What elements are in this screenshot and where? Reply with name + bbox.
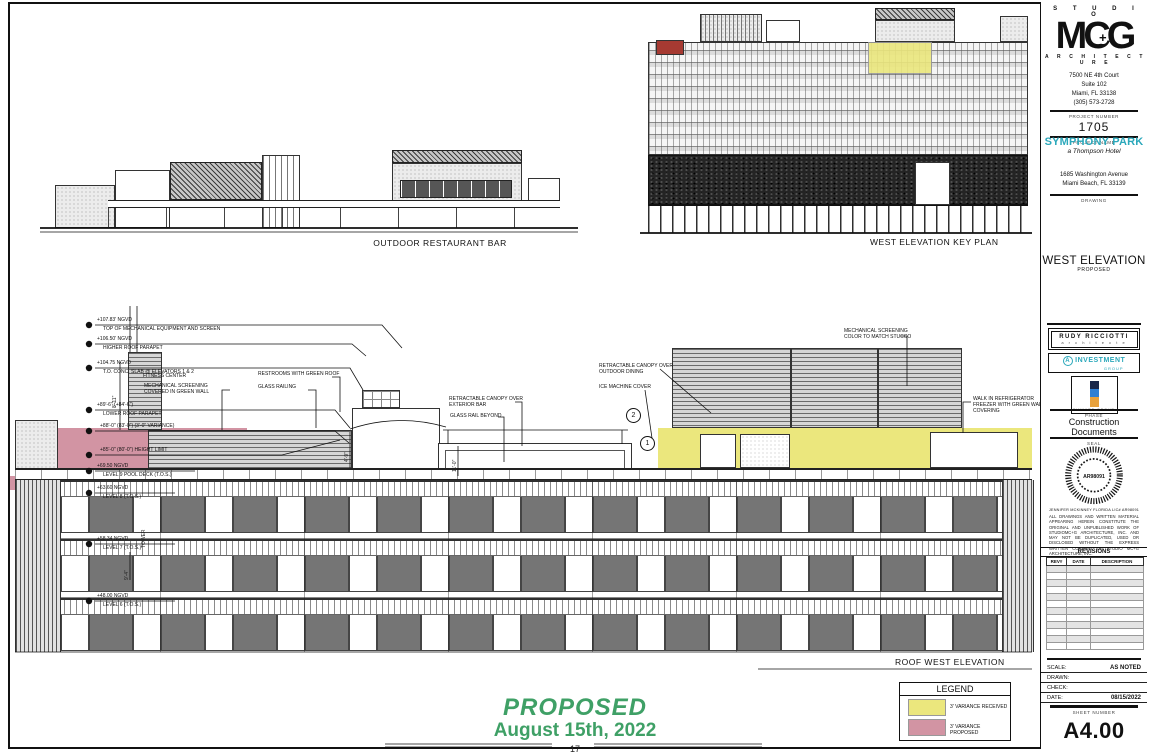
elevation-marker: +89'-6" (+84'-6")LOWER ROOF PARAPET (97, 402, 162, 417)
seal-zone: SEAL AR98091 JENNIFER MCKINNEY FLORIDA L… (1041, 437, 1147, 547)
callout-glass-rail-beyond: GLASS RAIL BEYOND (450, 413, 502, 419)
consultant-name: RUDY RICCIOTTI (1053, 334, 1136, 340)
keyplan-opening (915, 162, 950, 205)
date-label: DATE: (1047, 695, 1063, 701)
dimension-text: 4'-9" (344, 452, 350, 462)
revision-row (1047, 615, 1144, 622)
callout-ice-machine-cover: ICE MACHINE COVER (599, 384, 651, 390)
project-name: SYMPHONY PARK (1041, 136, 1147, 148)
tower-stair-core (16, 480, 61, 652)
revision-row (1047, 636, 1144, 643)
firm-identity: S T U D I O MCG+ A R C H I T E C T U R E… (1041, 2, 1147, 135)
consultant-rudy-ricciotti: RUDY RICCIOTTI a r c h i t e c t e (1048, 328, 1140, 350)
revisions-table: REV# DATE DESCRIPTION (1046, 557, 1144, 650)
dimension-text: 11'-0" (452, 460, 458, 472)
callout-walk-in-refrigerator: WALK IN REFRIGERATOR FREEZER WITH GREEN … (973, 396, 1045, 414)
elevation-marker: +69.50 NGVDLEVEL 9 POOL DECK (T.O.S.) (97, 463, 172, 478)
revisions-zone: REVISIONS REV# DATE DESCRIPTION (1041, 547, 1147, 657)
walk-in-refrigerator (930, 432, 1018, 468)
project-address: 1685 Washington Avenue Miami Beach, FL 3… (1041, 171, 1147, 189)
revisions-title: REVISIONS (1041, 547, 1147, 557)
consultant-role: GROUP (1051, 366, 1138, 371)
sheet-info-zone: SCALE:AS NOTED DRAWN: CHECK: DATE:08/15/… (1041, 657, 1147, 749)
keyplan-vegetation-band (648, 155, 1028, 205)
dimension-text: TOWER (141, 529, 147, 548)
elevation-marker: +63.60 NGVDLEVEL 8 (T.O.S.) (97, 485, 141, 500)
sheet-number: A4.00 (1041, 718, 1147, 744)
ice-machine-cover (740, 434, 790, 468)
scale-label: SCALE: (1047, 665, 1067, 671)
keyplan-roof-structure (1000, 16, 1028, 42)
keyplan-floors (648, 42, 1028, 155)
finvarb-logo-icon (1090, 381, 1099, 407)
revision-row (1047, 608, 1144, 615)
project-address-line: 1685 Washington Avenue (1041, 171, 1147, 180)
consultant-name: INVESTMENT (1075, 357, 1125, 364)
rev-col-date: DATE (1067, 558, 1091, 566)
divider (1050, 437, 1138, 439)
roof-parapet-wall (15, 420, 58, 470)
page-number: 17 (420, 744, 730, 754)
date-value: 08/15/2022 (1111, 695, 1141, 701)
drawing-sheet: OUTDOOR RESTAURANT BAR WEST ELEVATION KE… (0, 0, 1155, 755)
drawing-title: WEST ELEVATION (1041, 255, 1147, 267)
keyplan-roof-structure (766, 20, 800, 42)
variance-received-swatch (908, 699, 946, 716)
proposed-stamp: PROPOSED (420, 694, 730, 722)
scale-row: SCALE:AS NOTED (1041, 663, 1147, 673)
elevation-marker: +58.34 NGVDLEVEL 7 (T.O.S.) (97, 536, 141, 551)
seal-center-text: AR98091 (1083, 474, 1105, 480)
elevation-marker: +88'-0" (83'-0") (3'-0" VARIANCE) (100, 423, 174, 429)
dimension-text: 8'-11" (112, 396, 118, 408)
project-number-label: PROJECT NUMBER (1041, 114, 1147, 119)
phase-zone: PHASE Construction Documents (1041, 409, 1147, 437)
project-address-line: Miami Beach, FL 33139 (1041, 180, 1147, 189)
callout-glass-railing: GLASS RAILING (258, 384, 296, 390)
firm-address-line: Miami, FL 33138 (1041, 90, 1147, 99)
revision-row (1047, 601, 1144, 608)
divider (1050, 110, 1138, 112)
hotel-tower-floors (15, 480, 1034, 652)
keyplan-yellow-box (868, 42, 932, 74)
callout-bubble-2: 2 (626, 408, 641, 423)
drawn-label: DRAWN: (1047, 675, 1069, 681)
ice-machine-cover (700, 434, 736, 468)
tower-stair-core (1002, 480, 1033, 652)
revision-row (1047, 580, 1144, 587)
firm-address-line: Suite 102 (1041, 81, 1147, 90)
firm-address-line: 7500 NE 4th Court (1041, 72, 1147, 81)
divider (1047, 658, 1141, 660)
phase-value: Construction Documents (1041, 418, 1147, 438)
logo-plus: + (1098, 32, 1108, 44)
rev-col-number: REV# (1047, 558, 1067, 566)
sheet-number-label: SHEET NUMBER (1041, 710, 1147, 715)
mcg-logo: MCG+ (1041, 18, 1147, 54)
keyplan-red-box (656, 40, 684, 55)
section-windows (400, 180, 512, 198)
rev-col-description: DESCRIPTION (1091, 558, 1144, 566)
roof-elevation-label: ROOF WEST ELEVATION (895, 657, 1005, 667)
legend-row: 3' VARIANCE PROPOSED (900, 716, 1010, 736)
restrooms-structure (352, 408, 440, 470)
scale-value: AS NOTED (1110, 665, 1141, 671)
mechanical-screening (672, 348, 962, 428)
project-identity: SYMPHONY PARK a Thompson Hotel 1685 Wash… (1041, 136, 1147, 213)
drawing-label: DRAWING (1041, 198, 1147, 203)
keyplan-roof-structure (875, 20, 955, 42)
project-number: 1705 (1041, 120, 1147, 134)
divider (1050, 409, 1138, 411)
check-label: CHECK: (1047, 685, 1068, 691)
keyplan-roof-structure (875, 8, 955, 20)
revision-row (1047, 629, 1144, 636)
section-structure (170, 162, 262, 200)
legend-row: 3' VARIANCE RECEIVED (900, 696, 1010, 716)
keyplan-colonnade (648, 205, 1028, 233)
date-row: DATE:08/15/2022 (1041, 693, 1147, 703)
drawing-subtitle: PROPOSED (1041, 267, 1147, 273)
callout-canopy-exterior-bar: RETRACTABLE CANOPY OVER EXTERIOR BAR (449, 396, 523, 408)
divider (1047, 323, 1141, 325)
keyplan-label: WEST ELEVATION KEY PLAN (870, 237, 1035, 247)
callout-restrooms-green-roof: RESTROOMS WITH GREEN ROOF (258, 371, 339, 377)
firm-address: 7500 NE 4th Court Suite 102 Miami, FL 33… (1041, 72, 1147, 108)
firm-phone: (305) 573-2728 (1041, 99, 1147, 108)
elevation-marker: +85'-0" (80'-0") HEIGHT LIMIT (100, 447, 167, 453)
callout-mech-screening-stucco: MECHANICAL SCREENING COLOR TO MATCH STUC… (844, 328, 911, 340)
legend-title: LEGEND (900, 683, 1010, 696)
legend: LEGEND 3' VARIANCE RECEIVED 3' VARIANCE … (899, 682, 1011, 741)
revision-row (1047, 587, 1144, 594)
proposed-date: August 15th, 2022 (420, 720, 730, 742)
revision-row (1047, 573, 1144, 580)
seal-label: SEAL (1041, 441, 1147, 446)
callout-canopy-outdoor-dining: RETRACTABLE CANOPY OVER OUTDOOR DINING (599, 363, 673, 375)
fitness-center-screen (148, 430, 352, 470)
revision-row (1047, 594, 1144, 601)
revision-row (1047, 643, 1144, 650)
section-columns (108, 208, 560, 228)
legend-item-label: 3' VARIANCE RECEIVED (950, 704, 1007, 710)
dimension-text: 9'-4" (124, 570, 130, 580)
legend-item-label: 3' VARIANCE PROPOSED (950, 724, 1010, 736)
revision-row (1047, 622, 1144, 629)
consultant-investment-group: A INVESTMENT GROUP (1048, 353, 1140, 373)
architect-name: JENNIFER MCKINNEY FLORIDA LIC# AR98091 (1041, 508, 1147, 512)
consultant-zone: RUDY RICCIOTTI a r c h i t e c t e A INV… (1041, 323, 1147, 409)
keyplan-roof-structure (700, 14, 762, 42)
elevation-marker: +48.00 NGVDLEVEL 6 (T.O.S.) (97, 593, 141, 608)
consultant-role: a r c h i t e c t e (1053, 340, 1136, 345)
drawn-row: DRAWN: (1041, 673, 1147, 683)
section-structure (55, 185, 115, 228)
project-subname: a Thompson Hotel (1041, 148, 1147, 155)
section-structure (392, 150, 522, 163)
architect-seal: AR98091 (1058, 446, 1130, 508)
revision-row (1047, 566, 1144, 573)
elevation-marker: +107.83' NGVDTOP OF MECHANICAL EQUIPMENT… (97, 317, 220, 332)
footer-stamp: PROPOSED August 15th, 2022 17 (420, 694, 730, 754)
callout-mech-screening-green-wall: MECHANICAL SCREENING COVERED IN GREEN WA… (144, 383, 209, 395)
tower-column-lines (16, 480, 1033, 652)
divider (1050, 194, 1138, 196)
mech-screen-divider (790, 348, 792, 428)
callout-bubble-1: 1 (640, 436, 655, 451)
title-block: S T U D I O MCG+ A R C H I T E C T U R E… (1040, 2, 1147, 749)
divider (1050, 705, 1138, 708)
elevation-marker: +106.50' NGVDHIGHER ROOF PARAPET (97, 336, 163, 351)
drawing-title-zone: WEST ELEVATION PROPOSED (1041, 213, 1147, 323)
section-label: OUTDOOR RESTAURANT BAR (330, 238, 550, 248)
mech-screen-divider (877, 348, 879, 428)
check-row: CHECK: (1041, 683, 1147, 693)
callout-fitness-center: FITNESS CENTER (143, 373, 186, 379)
elevator-overrun (362, 390, 400, 408)
variance-proposed-swatch (908, 719, 946, 736)
section-deck-slab (108, 200, 560, 208)
investment-logo-icon: A (1063, 356, 1073, 366)
